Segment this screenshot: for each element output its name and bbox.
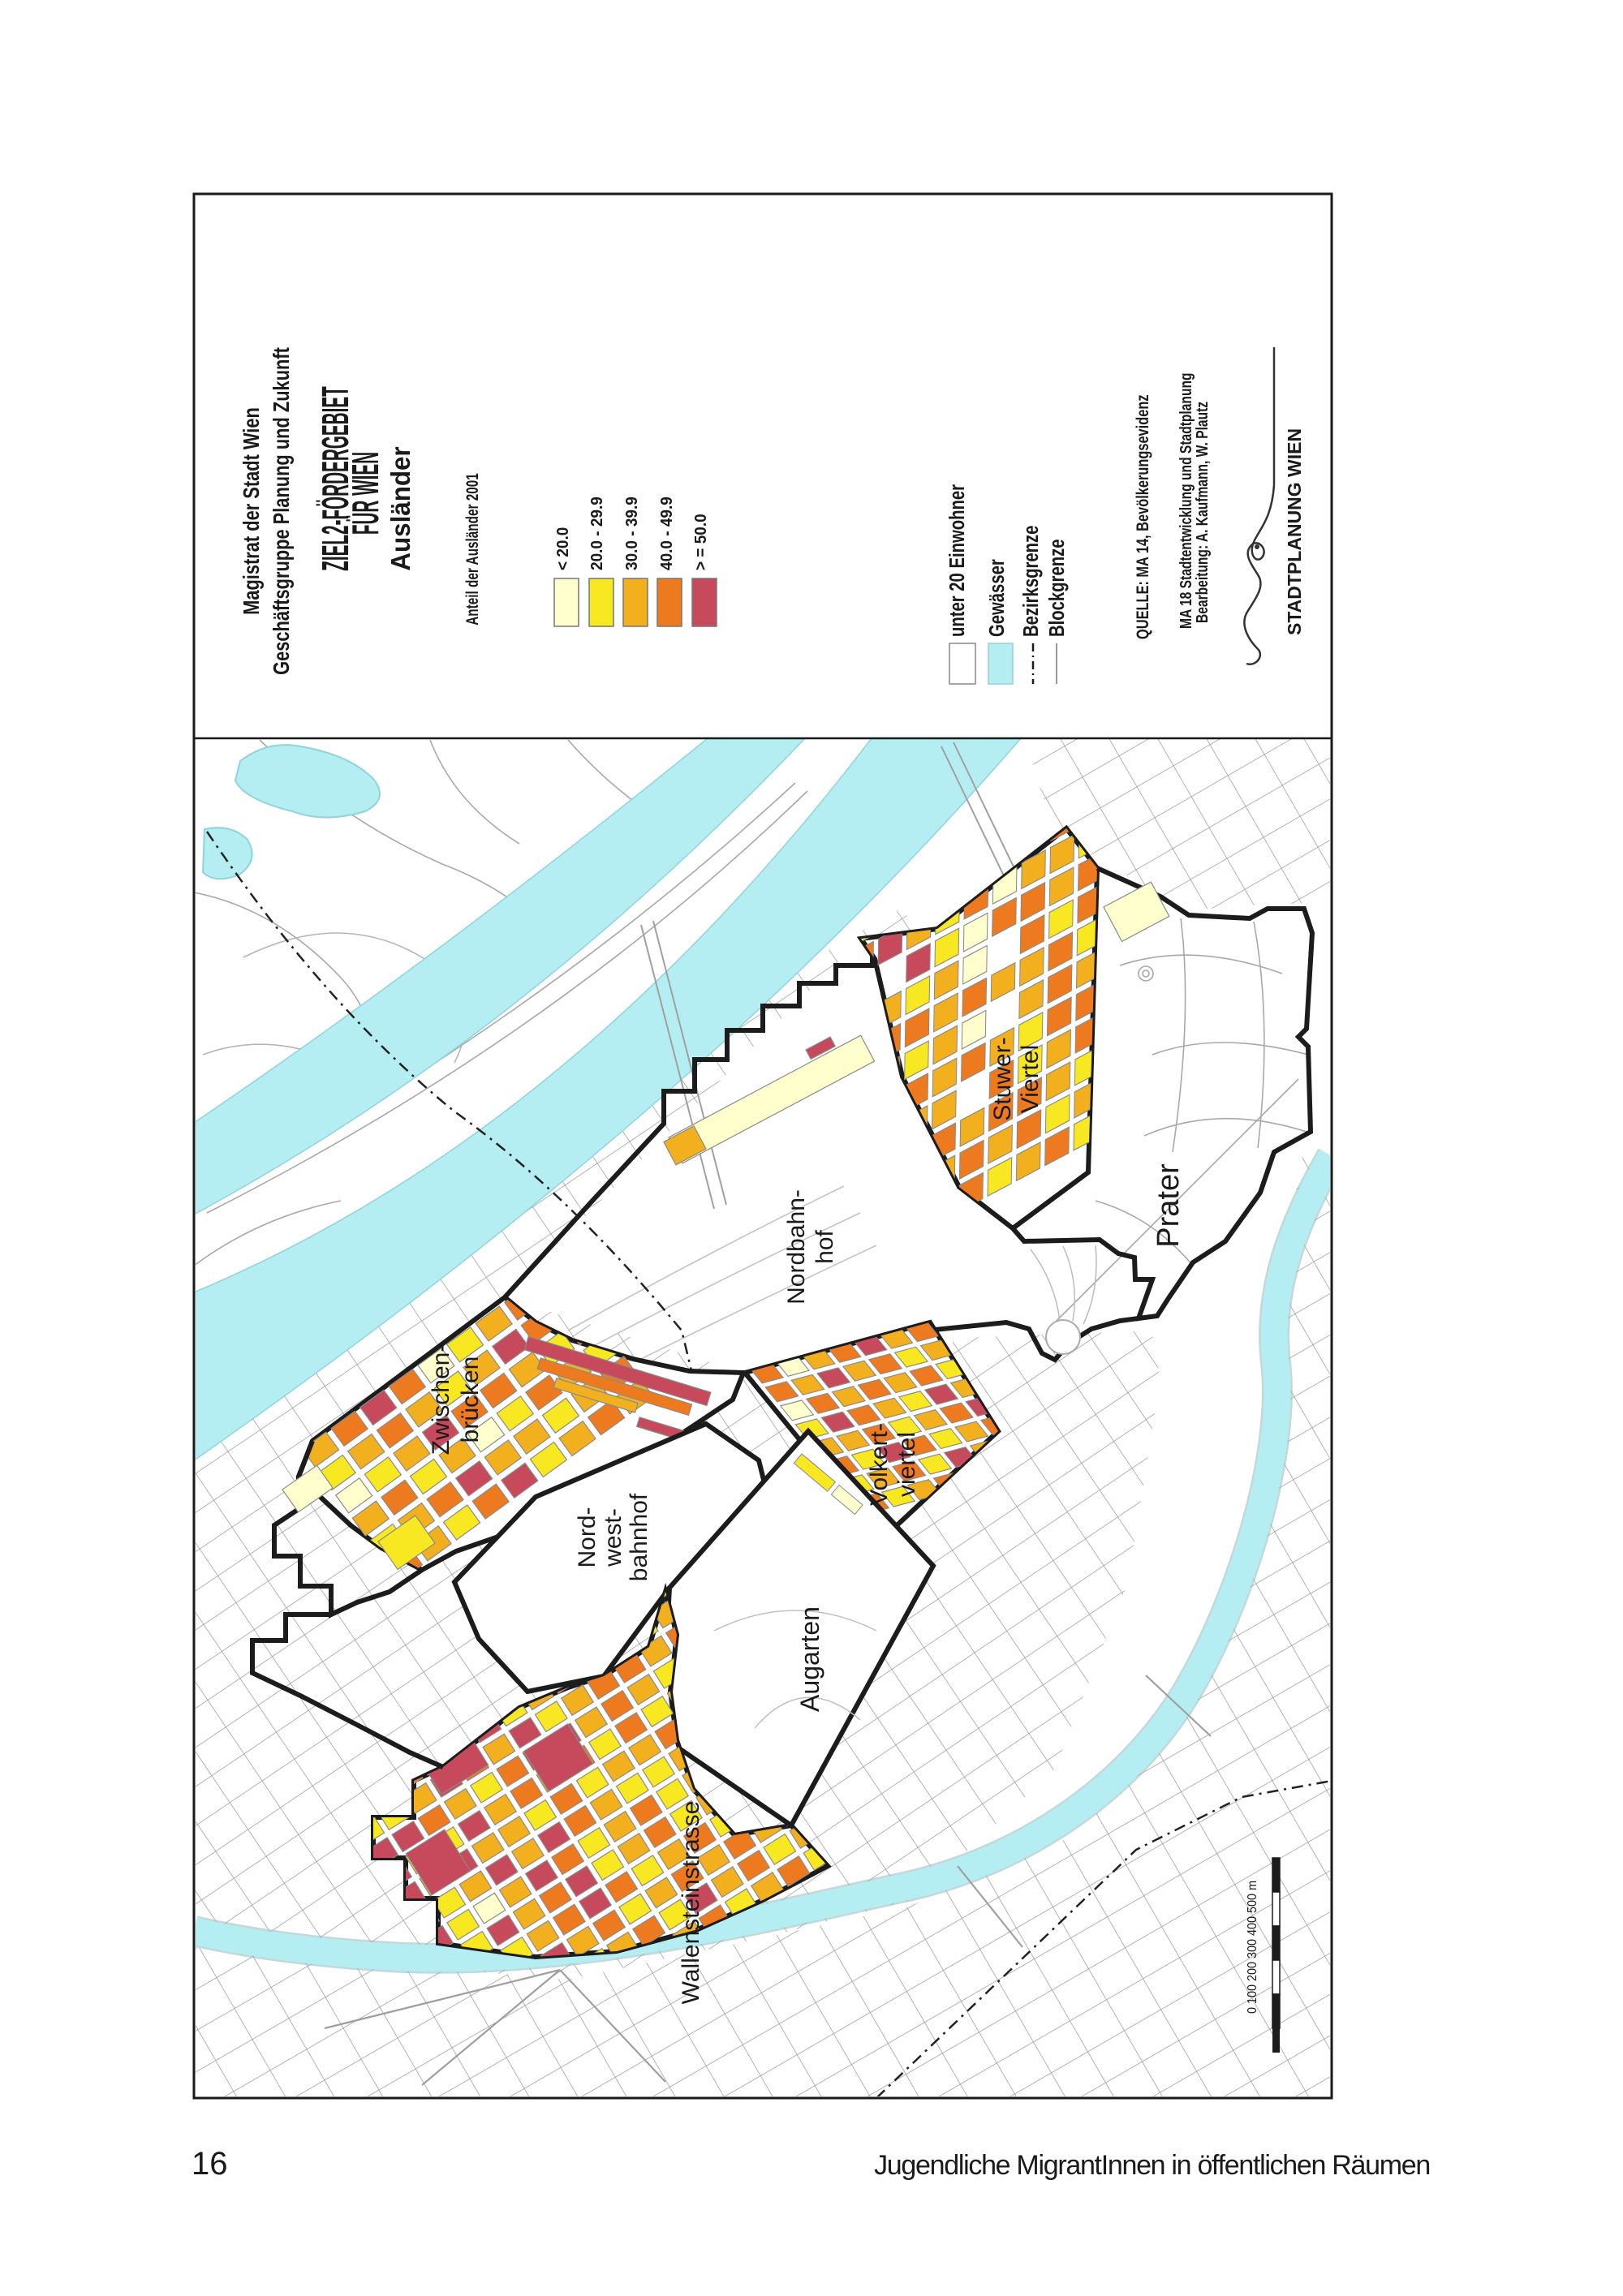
svg-text:Geschäftsgruppe Planung und Zu: Geschäftsgruppe Planung und Zukunft: [269, 347, 294, 675]
svg-text:Nord-: Nord-: [574, 1507, 601, 1567]
svg-text:QUELLE: MA 14, Bevölkerungsevi: QUELLE: MA 14, Bevölkerungsevidenz: [1133, 394, 1152, 639]
svg-text:Wallensteinstrasse: Wallensteinstrasse: [678, 1801, 704, 2005]
svg-text:16: 16: [192, 2146, 228, 2182]
svg-text:viertel: viertel: [893, 1432, 920, 1497]
svg-text:Viertel: Viertel: [1017, 1045, 1044, 1114]
svg-text:west-: west-: [600, 1508, 626, 1567]
svg-text:MA 18 Stadtentwicklung und Sta: MA 18 Stadtentwicklung und Stadtplanung: [1177, 372, 1195, 629]
svg-text:Jugendliche MigrantInnen in öf: Jugendliche MigrantInnen in öffentlichen…: [874, 2150, 1430, 2181]
svg-text:> = 50.0: > = 50.0: [692, 514, 711, 570]
svg-text:bahnhof: bahnhof: [626, 1493, 652, 1581]
svg-text:Augarten: Augarten: [795, 1606, 824, 1712]
svg-text:STADTPLANUNG WIEN: STADTPLANUNG WIEN: [1284, 428, 1305, 635]
svg-text:Zwischen-: Zwischen-: [428, 1344, 454, 1455]
svg-text:30.0 - 39.9: 30.0 - 39.9: [623, 497, 642, 570]
svg-text:unter 20 Einwohner: unter 20 Einwohner: [945, 484, 969, 637]
svg-text:Nordbahn-: Nordbahn-: [783, 1189, 810, 1305]
svg-text:Blockgrenze: Blockgrenze: [1045, 539, 1069, 637]
svg-text:20.0 - 29.9: 20.0 - 29.9: [588, 497, 607, 570]
svg-text:Stuwer-: Stuwer-: [989, 1037, 1016, 1120]
svg-text:Gewässer: Gewässer: [985, 559, 1009, 637]
svg-text:Prater: Prater: [1152, 1163, 1186, 1248]
svg-text:0 100 200 300 400 500 m: 0 100 200 300 400 500 m: [1245, 1881, 1259, 2014]
svg-text:FÜR WIEN: FÜR WIEN: [345, 452, 387, 535]
svg-text:hof: hof: [811, 1229, 838, 1263]
svg-text:Bezirksgrenze: Bezirksgrenze: [1019, 526, 1043, 637]
svg-text:40.0 - 49.9: 40.0 - 49.9: [658, 497, 677, 570]
svg-text:Magistrat der Stadt Wien: Magistrat der Stadt Wien: [239, 407, 264, 615]
svg-text:Anteil der Ausländer 2001: Anteil der Ausländer 2001: [463, 473, 482, 626]
svg-text:Bearbeitung: A. Kaufmann, W. P: Bearbeitung: A. Kaufmann, W. Plautz: [1193, 402, 1211, 623]
svg-text:Volkert-: Volkert-: [866, 1423, 893, 1506]
svg-text:Ausländer: Ausländer: [385, 446, 415, 571]
svg-text:< 20.0: < 20.0: [554, 527, 573, 570]
svg-text:brücken: brücken: [457, 1357, 484, 1443]
